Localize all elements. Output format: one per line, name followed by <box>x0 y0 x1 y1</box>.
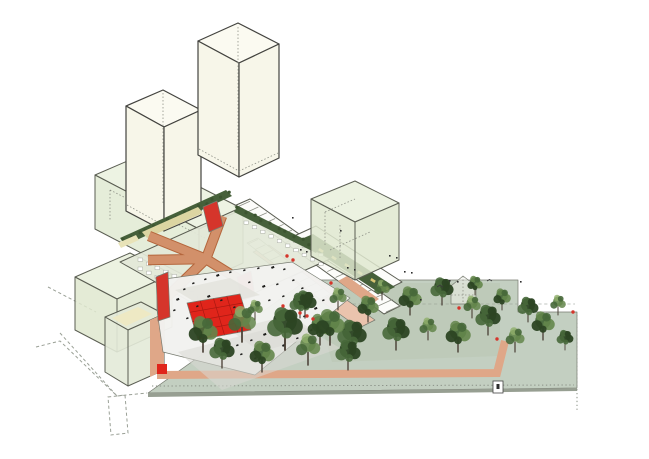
facade-window <box>147 271 152 274</box>
red-dot-marker <box>457 306 460 309</box>
micro-annotation-marker <box>292 217 294 219</box>
site-boundary-stub <box>108 395 128 435</box>
facade-window <box>138 258 143 261</box>
micro-annotation-marker <box>411 272 413 274</box>
gate-tag-glyph <box>497 384 500 389</box>
hedge-bush <box>228 191 231 194</box>
hedge-bush <box>278 227 281 230</box>
hedge-bush <box>219 196 222 199</box>
hedge-bush <box>283 230 286 233</box>
facade-window <box>302 253 306 256</box>
red-wall-west <box>156 272 170 321</box>
facade-window <box>294 249 298 252</box>
tower-east-front <box>198 41 239 177</box>
red-dot-marker <box>281 304 284 307</box>
micro-annotation-marker <box>347 267 349 269</box>
micro-annotation-marker <box>520 281 522 283</box>
red-dot-marker <box>311 317 314 320</box>
diagram-canvas <box>0 0 649 459</box>
micro-annotation-marker <box>457 281 459 283</box>
micro-annotation-marker <box>340 230 342 232</box>
micro-annotation-marker <box>306 251 308 253</box>
hedge-bush <box>138 231 141 234</box>
facade-window <box>138 267 143 270</box>
red-dot-marker <box>571 310 574 313</box>
micro-annotation-marker <box>404 271 406 273</box>
red-dot-marker <box>298 311 301 314</box>
facade-window <box>261 230 265 233</box>
facade-window <box>252 226 256 229</box>
red-square-marker <box>157 364 167 374</box>
red-dot-marker <box>285 254 288 257</box>
hedge-bush <box>244 211 247 214</box>
micro-annotation-marker <box>300 249 302 251</box>
site-axonometric-diagram <box>0 0 649 459</box>
micro-annotation-marker <box>420 299 422 301</box>
hedge-bush <box>235 206 238 209</box>
hedge-bush <box>292 235 295 238</box>
hedge-bush <box>197 204 200 207</box>
facade-window <box>155 266 160 269</box>
hedge-bush <box>268 222 271 225</box>
tower-east <box>198 23 279 177</box>
micro-annotation-marker <box>396 257 398 259</box>
red-dot-marker <box>329 281 332 284</box>
facade-window <box>269 235 273 238</box>
hedge-bush <box>259 219 262 222</box>
micro-annotation-marker <box>449 280 451 282</box>
facade-window <box>319 262 323 265</box>
gate-tag <box>493 381 503 393</box>
hedge-bush <box>302 238 305 241</box>
micro-annotation-marker <box>389 255 391 257</box>
tower-east-side <box>239 44 279 177</box>
red-dot-marker <box>495 337 498 340</box>
facade-window <box>244 221 248 224</box>
facade-window <box>286 244 290 247</box>
micro-annotation-marker <box>354 269 356 271</box>
hedge-bush <box>307 243 310 246</box>
hedge-bush <box>210 197 213 200</box>
red-dot-marker <box>291 258 294 261</box>
tower-west-front <box>126 106 164 231</box>
red-dot-marker <box>305 314 308 317</box>
hedge-bush <box>254 214 257 217</box>
facade-window <box>277 239 281 242</box>
